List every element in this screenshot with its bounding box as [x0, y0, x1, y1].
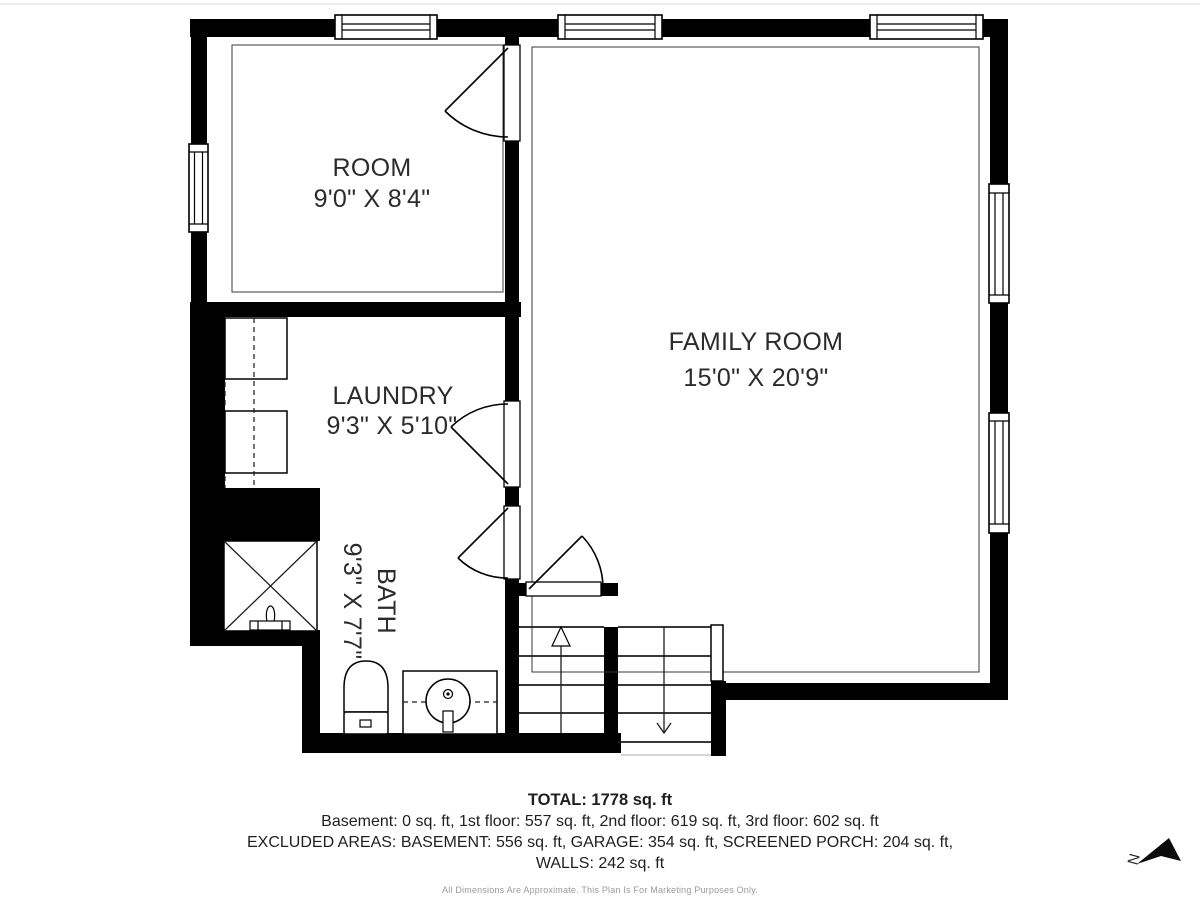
family-room-dimensions: 15'0" X 20'9": [683, 364, 828, 392]
room-dimensions: 9'0" X 8'4": [314, 185, 431, 213]
total-area-text: TOTAL: 1778 sq. ft: [0, 790, 1200, 811]
disclaimer-text: All Dimensions Are Approximate. This Pla…: [0, 885, 1200, 895]
family-room-name: FAMILY ROOM: [669, 328, 844, 356]
window-top-left: [335, 15, 437, 39]
laundry-door: [451, 401, 520, 487]
room-name: ROOM: [333, 154, 412, 182]
stair-newel: [711, 625, 723, 681]
window-top-middle: [558, 15, 662, 39]
room-label: ROOM 9'0" X 8'4": [314, 154, 431, 213]
dryer-icon: [225, 411, 287, 473]
laundry-dimensions: 9'3" X 5'10": [327, 412, 458, 440]
toilet-icon: [344, 661, 388, 734]
stairs-up-arrow-icon: [552, 627, 570, 646]
floor-areas-text: Basement: 0 sq. ft, 1st floor: 557 sq. f…: [0, 811, 1200, 832]
window-right-wall-lower: [989, 413, 1009, 533]
sink-vanity-icon: [403, 671, 497, 734]
staircase-down: [618, 625, 723, 755]
stair-door: [526, 536, 603, 596]
shower-icon: [224, 541, 317, 631]
laundry-label: LAUNDRY 9'3" X 5'10": [327, 382, 458, 440]
bath-name: BATH: [372, 568, 400, 634]
window-right-wall-upper: [989, 184, 1009, 303]
window-top-right: [870, 15, 983, 39]
floor-plan-drawing: ROOM 9'0" X 8'4" LAUNDRY 9'3" X 5'10" BA…: [0, 0, 1200, 900]
washer-dryer-icons: [225, 318, 287, 488]
walls: [190, 19, 1008, 756]
floor-plan-page: ROOM 9'0" X 8'4" LAUNDRY 9'3" X 5'10" BA…: [0, 0, 1200, 900]
bath-label: BATH 9'3" X 7'7": [338, 543, 400, 660]
laundry-name: LAUNDRY: [332, 382, 453, 410]
bath-door: [458, 506, 520, 579]
area-summary: TOTAL: 1778 sq. ft Basement: 0 sq. ft, 1…: [0, 790, 1200, 895]
family-room-inner-outline: [532, 47, 979, 672]
window-left-wall: [189, 144, 208, 232]
family-room-label: FAMILY ROOM 15'0" X 20'9": [669, 328, 844, 392]
room-door: [445, 45, 520, 141]
walls-area-text: WALLS: 242 sq. ft: [0, 853, 1200, 874]
bath-dimensions: 9'3" X 7'7": [338, 543, 366, 660]
excluded-areas-text: EXCLUDED AREAS: BASEMENT: 556 sq. ft, GA…: [0, 832, 1200, 853]
washer-icon: [225, 318, 287, 379]
